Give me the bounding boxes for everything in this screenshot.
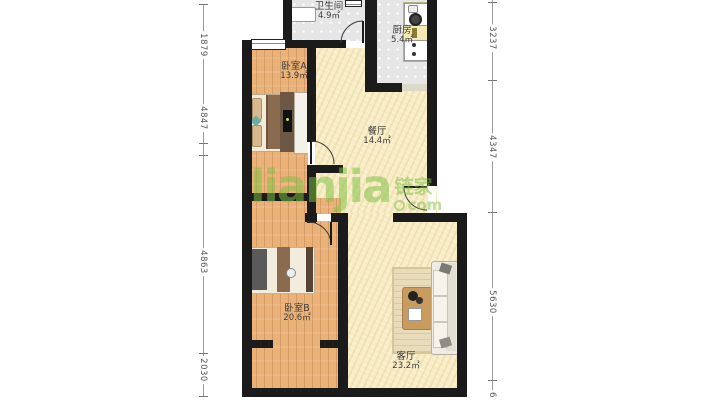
watermark-cjk: 链家 (394, 177, 442, 197)
room-label-living: 客厅23.2㎡ (392, 352, 419, 372)
dimension-label-right: 3237 (487, 24, 497, 52)
room-area: 23.2㎡ (392, 362, 419, 371)
watermark-brand: lianjia (250, 167, 390, 207)
bedroom-b-door-arc (308, 222, 331, 245)
dimension-tick-left (199, 396, 208, 397)
dimension-line-right (492, 0, 493, 400)
watermark-ring-icon (394, 200, 405, 211)
room-area: 20.6㎡ (283, 314, 310, 323)
dimension-label-left: 2030 (198, 356, 208, 384)
dimension-label-left: 4847 (198, 104, 208, 132)
dimension-label-right: 5630 (487, 288, 497, 316)
dimension-tick-left (199, 143, 208, 144)
dimension-tick-left (199, 155, 208, 156)
room-label-bathroom: 卫生间4.9㎡ (315, 2, 344, 22)
dimension-label-left: 4863 (198, 248, 208, 276)
floor-plan: 卫生间4.9㎡厨房5.4㎡卧室A13.9㎡餐厅14.4㎡卧室B20.6㎡客厅23… (0, 0, 710, 400)
watermark-domain: com (407, 197, 442, 213)
dimension-tick-left (199, 4, 208, 5)
room-area: 4.9㎡ (315, 12, 344, 21)
dimension-label-right: 4347 (487, 133, 497, 161)
watermark: lianjia 链家 com (250, 167, 442, 213)
room-label-bedroom-b: 卧室B20.6㎡ (283, 304, 310, 324)
dimension-tick-right (488, 2, 497, 3)
dimension-tick-right (488, 380, 497, 381)
dimension-tick-right (488, 212, 497, 213)
dimension-label-right: 6 (487, 390, 497, 400)
dimension-line-left (203, 4, 204, 397)
dimension-label-left: 1879 (198, 31, 208, 59)
bathroom-door-arc (341, 21, 363, 43)
dimension-tick-right (488, 80, 497, 81)
room-area: 14.4㎡ (363, 137, 390, 146)
room-label-dining: 餐厅14.4㎡ (363, 127, 390, 147)
room-label-kitchen: 厨房5.4㎡ (391, 26, 413, 46)
room-area: 5.4㎡ (391, 36, 413, 45)
dimension-tick-left (199, 353, 208, 354)
room-label-bedroom-a: 卧室A13.9㎡ (280, 62, 307, 82)
room-area: 13.9㎡ (280, 72, 307, 81)
